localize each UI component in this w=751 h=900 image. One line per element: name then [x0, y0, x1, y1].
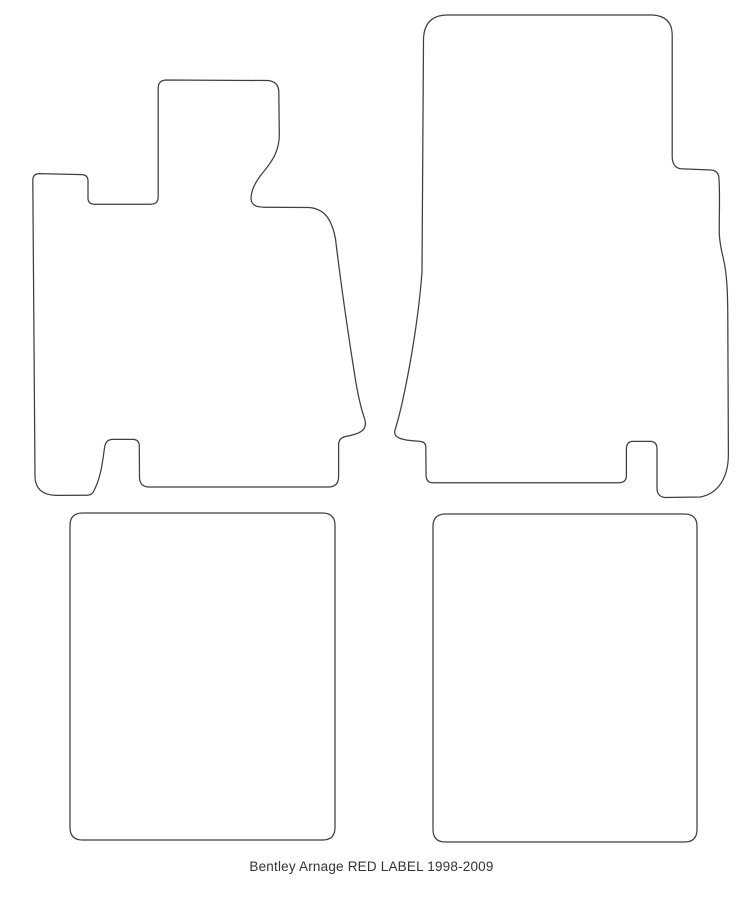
floor-mats-diagram [0, 0, 751, 900]
rear-right-mat-outline [433, 514, 697, 842]
mat-outlines-group [33, 15, 729, 842]
diagram-canvas: Bentley Arnage RED LABEL 1998-2009 [0, 0, 751, 900]
caption-text: Bentley Arnage RED LABEL 1998-2009 [0, 859, 743, 874]
front-right-mat-outline [395, 15, 729, 498]
rear-left-mat-outline [70, 513, 335, 840]
front-left-mat-outline [33, 80, 366, 495]
